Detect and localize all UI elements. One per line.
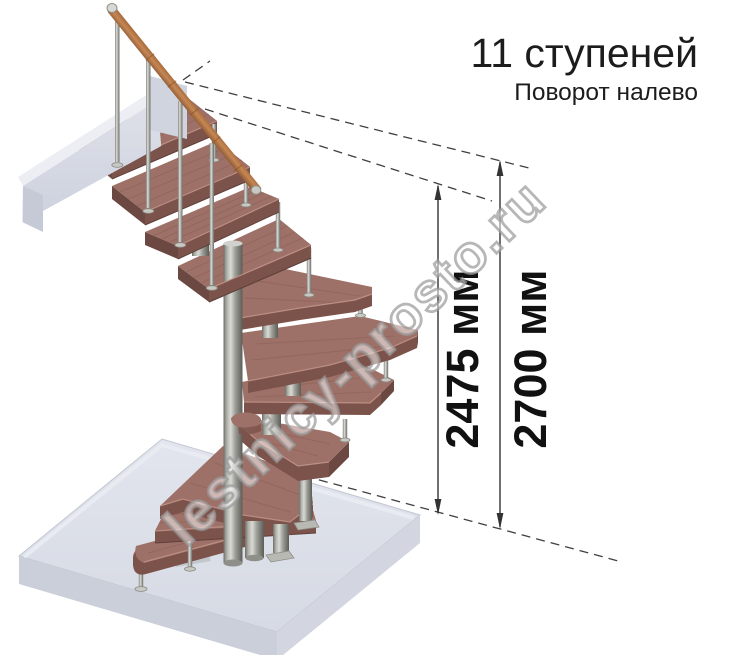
svg-text:11 ступеней: 11 ступеней xyxy=(470,30,698,76)
svg-text:2700 мм: 2700 мм xyxy=(505,269,556,448)
svg-text:Поворот налево: Поворот налево xyxy=(514,79,698,106)
